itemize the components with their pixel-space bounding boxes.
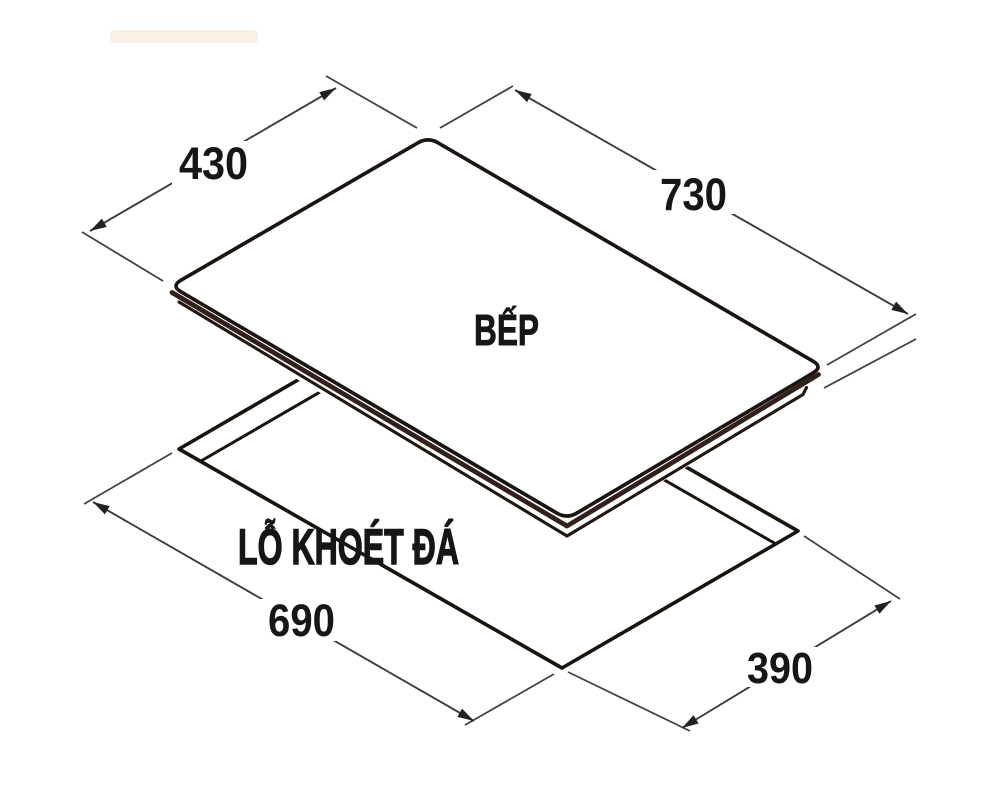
svg-text:430: 430 (179, 138, 248, 189)
svg-text:LỖ KHOÉT ĐÁ: LỖ KHOÉT ĐÁ (238, 519, 459, 575)
svg-text:BẾP: BẾP (474, 305, 539, 355)
svg-text:690: 690 (268, 595, 335, 646)
svg-text:390: 390 (747, 644, 813, 693)
svg-text:730: 730 (660, 169, 727, 220)
